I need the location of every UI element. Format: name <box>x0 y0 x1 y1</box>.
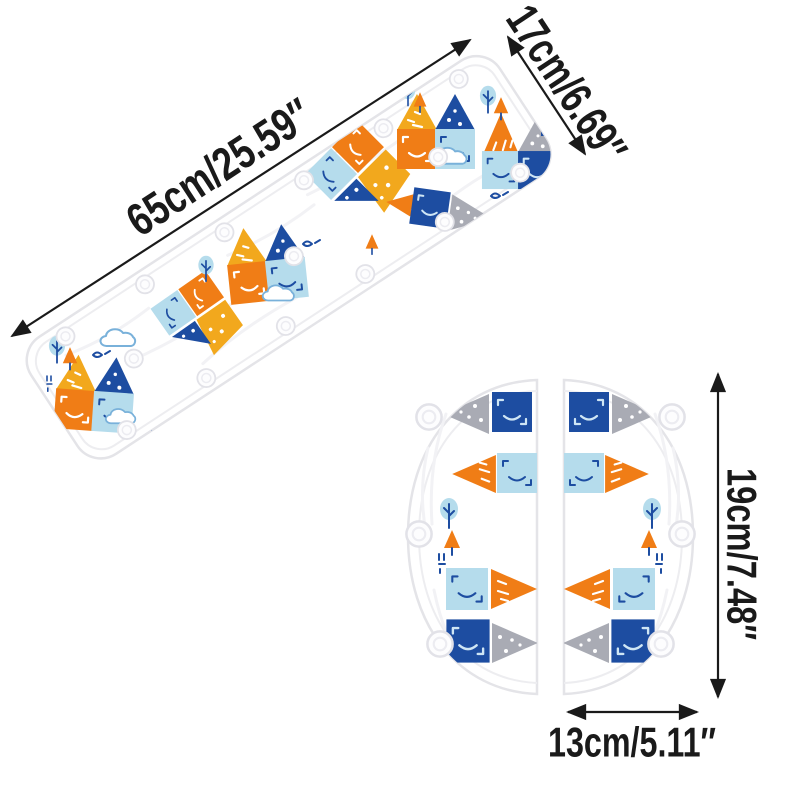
shoulder-pad-left <box>406 380 538 694</box>
pad-width-label: 13cm/5.11″ <box>548 719 716 766</box>
pad-height-label: 19cm/7.48″ <box>719 468 766 640</box>
shoulder-pad-right <box>563 380 695 694</box>
product-dimension-image: 65cm/25.59″ 17cm/6.69″ 19cm/7.48″ 13cm/5… <box>0 0 800 800</box>
annotated-product-photo: 65cm/25.59″ 17cm/6.69″ 19cm/7.48″ 13cm/5… <box>0 0 800 800</box>
